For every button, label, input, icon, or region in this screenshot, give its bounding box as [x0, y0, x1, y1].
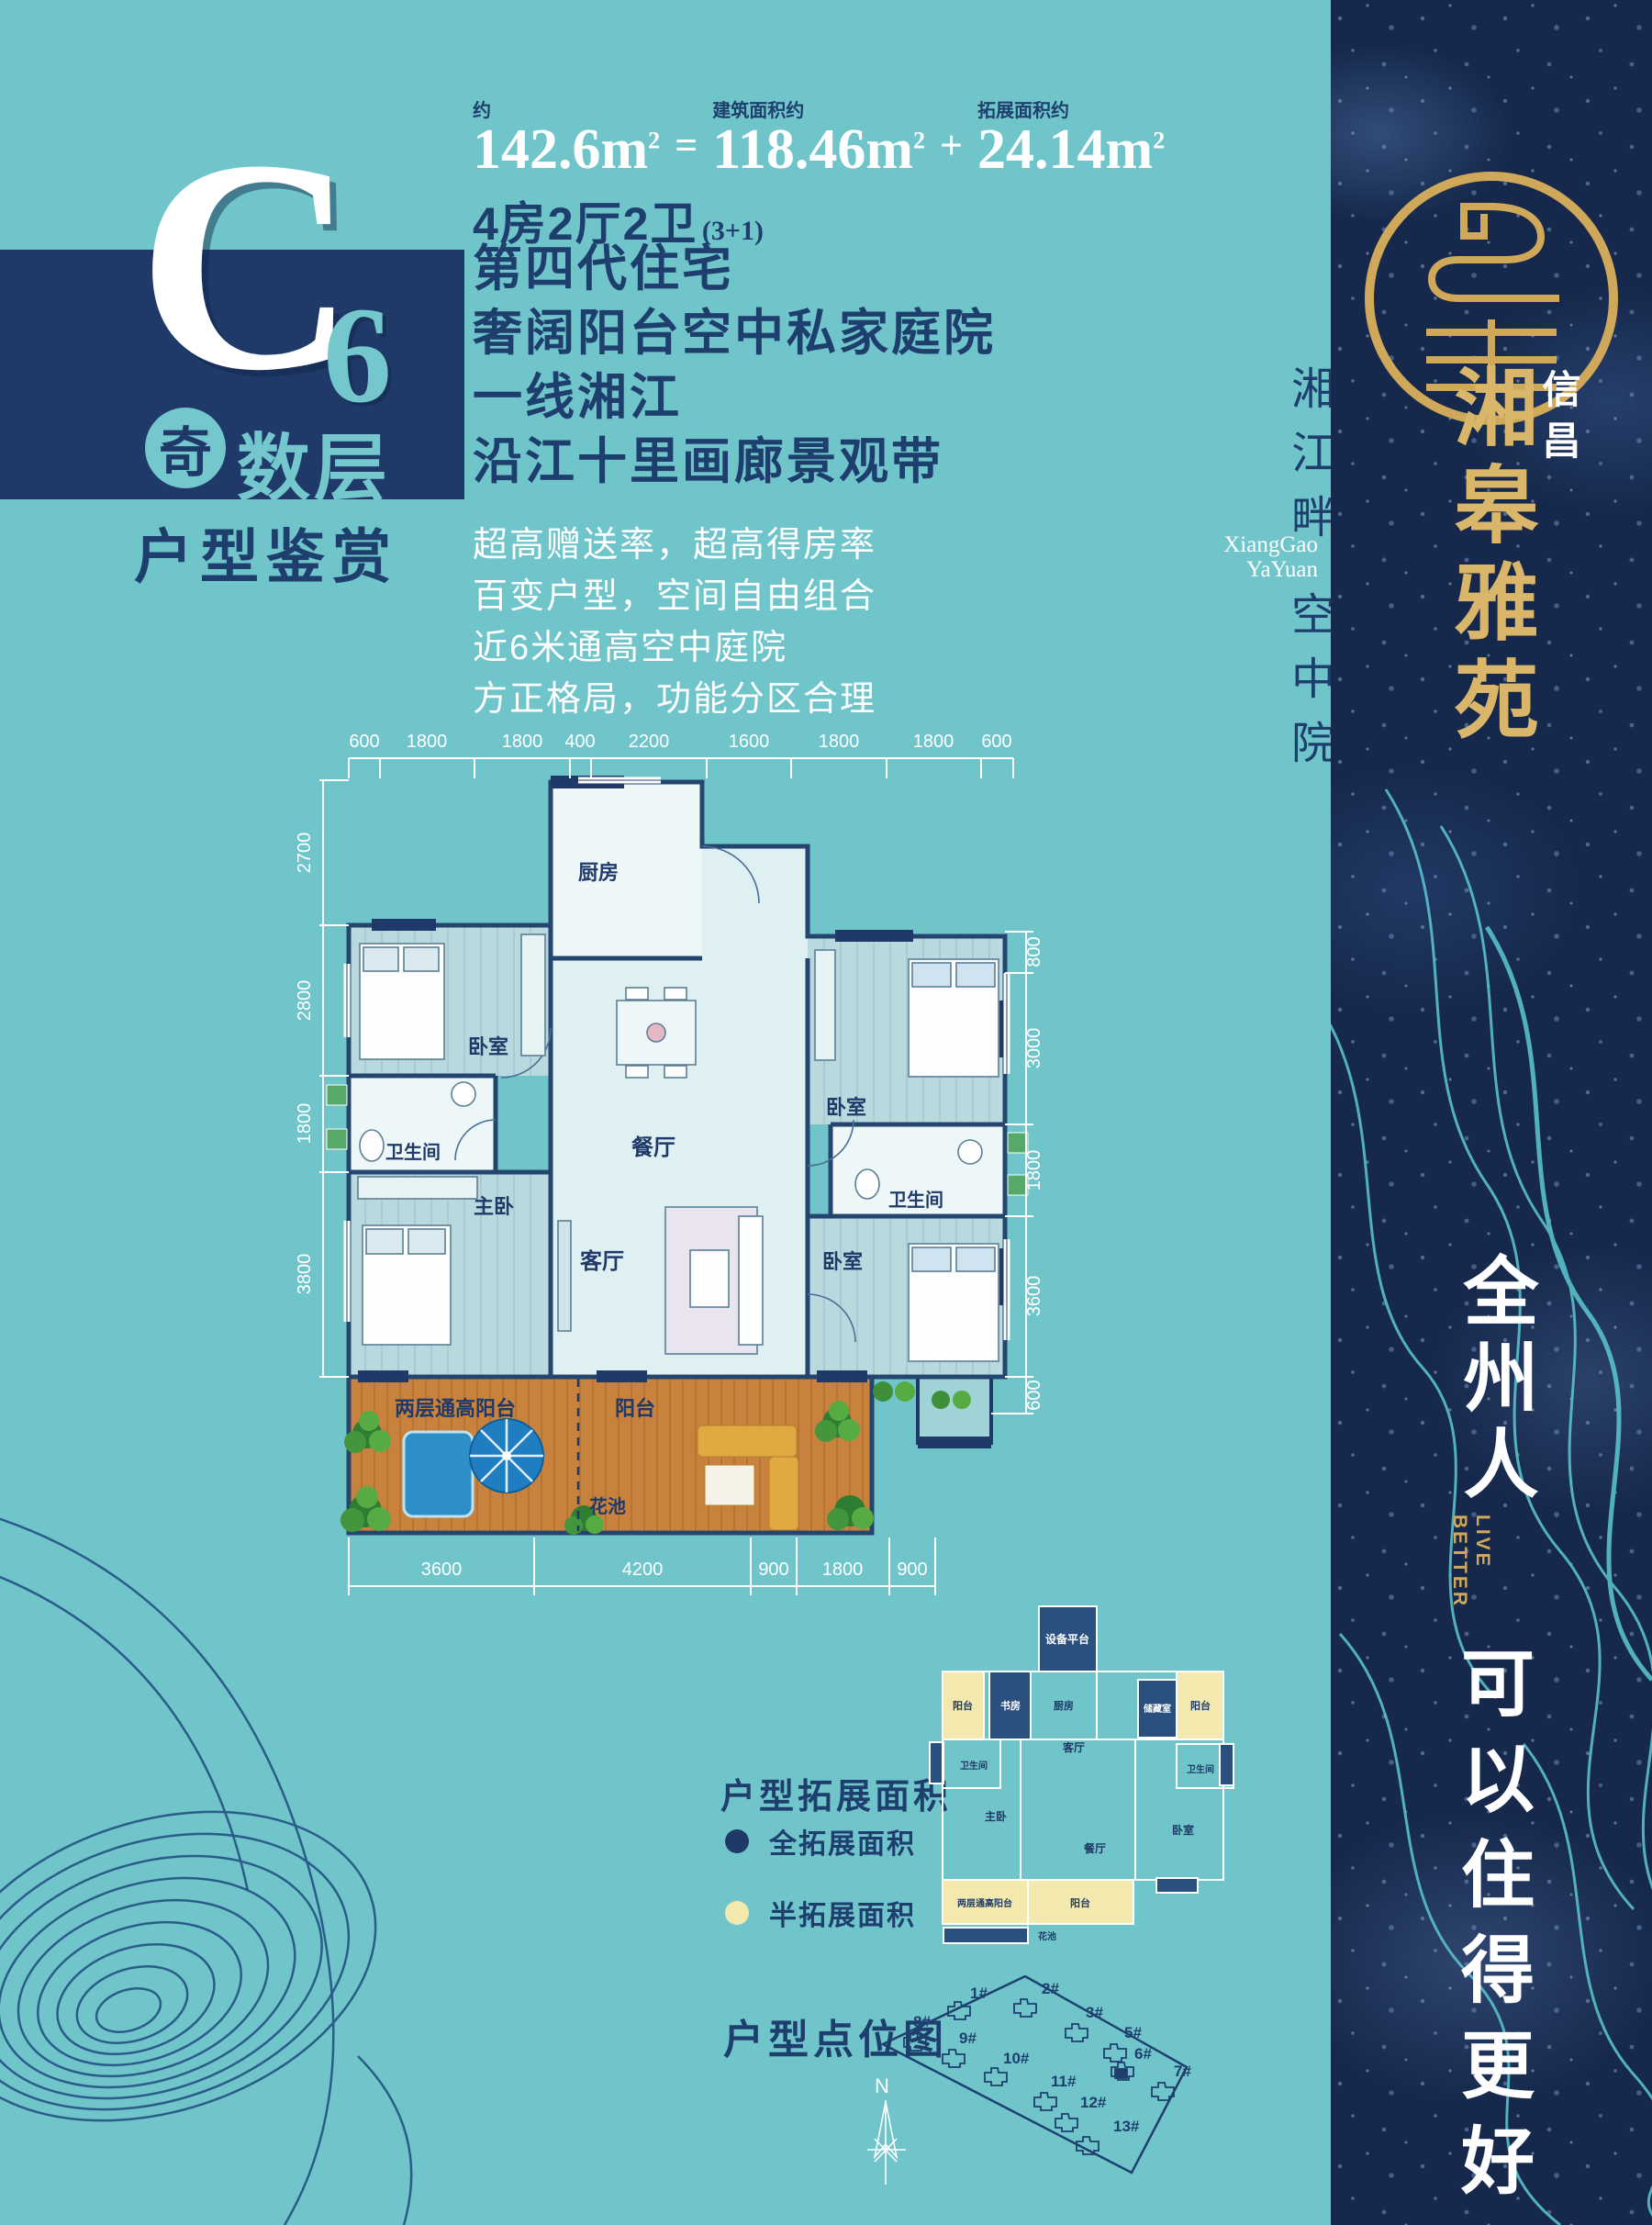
svg-text:1800: 1800	[407, 732, 448, 752]
room-label-master: 主卧	[474, 1195, 514, 1218]
compass-icon: N	[867, 2074, 906, 2185]
page-title: 户型鉴赏	[134, 510, 398, 595]
slogan-en-live: LIVE	[1471, 1515, 1494, 1643]
full-extension-label: 全拓展面积	[769, 1821, 916, 1862]
svg-text:10#: 10#	[1003, 2050, 1030, 2067]
feature: 百变户型，空间自由组合	[473, 571, 876, 622]
room-label-balcony: 阳台	[615, 1397, 655, 1420]
svg-text:4200: 4200	[622, 1560, 664, 1580]
svg-text:3600: 3600	[1024, 1276, 1044, 1317]
svg-text:600: 600	[1024, 1380, 1044, 1410]
svg-text:1800: 1800	[502, 732, 543, 752]
svg-text:1800: 1800	[822, 1560, 864, 1580]
headline: 第四代住宅	[473, 237, 996, 301]
svg-text:600: 600	[981, 732, 1011, 752]
built-area-value: 118.46m2	[712, 124, 925, 176]
svg-text:8#: 8#	[913, 2013, 931, 2030]
svg-text:9#: 9#	[959, 2029, 977, 2047]
pinyin-line2: YaYuan	[1195, 557, 1318, 582]
svg-text:6#: 6#	[1134, 2045, 1152, 2063]
room-label-kitchen: 厨房	[578, 861, 619, 884]
slogan-cn-top: 全州人	[1439, 1252, 1548, 1527]
slogan-en-better: BETTER	[1448, 1515, 1471, 1643]
mini-label-kitchen: 厨房	[1054, 1699, 1074, 1712]
svg-text:7#: 7#	[1174, 2063, 1191, 2080]
svg-text:5#: 5#	[1124, 2024, 1142, 2041]
room-label-bath-left: 卫生间	[385, 1142, 441, 1163]
svg-text:11#: 11#	[1051, 2073, 1077, 2090]
total-area-value: 142.6m2	[473, 124, 660, 176]
svg-text:3#: 3#	[1086, 2004, 1103, 2021]
floorplan-poster: C 6 奇 数层 户型鉴赏 约 142.6m2 = 建筑面积约 118.46m2…	[0, 0, 1652, 2225]
area-equation: 约 142.6m2 = 建筑面积约 118.46m2 + 拓展面积约 24.14…	[473, 95, 1165, 176]
svg-text:2700: 2700	[295, 833, 315, 874]
mini-label-balcony-tall: 两层通高阳台	[957, 1897, 1012, 1909]
mini-label-equipment: 设备平台	[1045, 1632, 1089, 1646]
mini-label-balcony-tl: 阳台	[953, 1699, 973, 1712]
legend-title: 户型拓展面积	[720, 1768, 952, 1818]
room-label-balcony-tall: 两层通高阳台	[395, 1397, 516, 1420]
strip-text-pinyin: XiangGao YaYuan	[1195, 532, 1318, 582]
room-label-bedroom-left: 卧室	[468, 1035, 508, 1058]
highlighted-unit-marker	[1115, 2069, 1127, 2078]
built-area-group: 建筑面积约 118.46m2	[712, 95, 925, 176]
feature-list: 超高赠送率，超高得房率 百变户型，空间自由组合 近6米通高空中庭院 方正格局，功…	[473, 520, 876, 725]
svg-text:1800: 1800	[819, 732, 860, 752]
svg-text:900: 900	[758, 1560, 788, 1580]
floor-plan: 厨房 餐厅 客厅 卧室 卫生间 主卧 卧室 卫生间 卧室 两层通高阳台 阳台 花…	[275, 725, 1046, 1616]
svg-text:400: 400	[564, 732, 595, 752]
odd-floor-label: 数层	[237, 409, 391, 516]
headline: 一线湘江	[473, 365, 996, 430]
odd-floor-badge: 奇	[145, 408, 226, 488]
half-extension-label: 半拓展面积	[769, 1893, 916, 1933]
legend-item-half: 半拓展面积	[725, 1893, 916, 1933]
extension-area-group: 拓展面积约 24.14m2	[977, 95, 1165, 176]
mini-label-bath-left: 卫生间	[960, 1760, 988, 1772]
extension-area-value: 24.14m2	[977, 124, 1165, 176]
svg-text:2#: 2#	[1042, 1980, 1059, 1997]
svg-text:1600: 1600	[729, 732, 770, 752]
extension-mini-plan: 设备平台 阳台 书房 厨房 储藏室 阳台 卫生间 客厅 卫生间 主卧 餐厅 卧室…	[922, 1586, 1289, 1985]
mini-label-dining: 餐厅	[1084, 1841, 1106, 1855]
pinyin-line1: XiangGao	[1195, 532, 1318, 557]
mini-label-bedroom: 卧室	[1172, 1823, 1194, 1837]
small-balcony	[918, 1377, 991, 1443]
svg-text:2800: 2800	[295, 980, 315, 1022]
mini-label-flower: 花池	[1038, 1930, 1056, 1942]
headline: 沿江十里画廊景观带	[473, 430, 996, 494]
room-label-bath-right: 卫生间	[888, 1190, 943, 1211]
svg-text:800: 800	[1024, 936, 1044, 967]
mini-label-master: 主卧	[985, 1809, 1007, 1823]
svg-text:1800: 1800	[295, 1103, 315, 1145]
svg-text:13#: 13#	[1113, 2118, 1140, 2135]
svg-text:1800: 1800	[913, 732, 954, 752]
unit-number: 6	[323, 296, 392, 415]
mini-label-balcony-tr: 阳台	[1190, 1699, 1211, 1712]
room-label-living: 客厅	[580, 1248, 624, 1274]
svg-text:N: N	[875, 2074, 889, 2097]
svg-text:600: 600	[349, 732, 379, 752]
full-extension-dot	[725, 1829, 749, 1853]
svg-text:1#: 1#	[970, 1985, 988, 2002]
svg-text:1800: 1800	[1024, 1150, 1044, 1191]
headline-list: 第四代住宅 奢阔阳台空中私家庭院 一线湘江 沿江十里画廊景观带	[473, 237, 996, 494]
room-label-bedroom-right-top: 卧室	[826, 1096, 866, 1119]
svg-text:3000: 3000	[1024, 1028, 1044, 1069]
room-label-dining: 餐厅	[631, 1135, 675, 1160]
svg-text:12#: 12#	[1080, 2094, 1107, 2111]
site-map: 1# 2# 3# 5# 6# 7# 8# 9# 10# 11# 12# 13# …	[867, 1973, 1363, 2225]
brand-sidebar: 湘皋雅苑 信昌 全州人 LIVE BETTER 可以住得更好	[1331, 0, 1652, 2225]
half-extension-dot	[725, 1901, 749, 1925]
svg-text:2200: 2200	[629, 732, 670, 752]
slogan-en: LIVE BETTER	[1448, 1515, 1494, 1643]
brand-developer: 信昌	[1531, 369, 1587, 516]
feature: 方正格局，功能分区合理	[473, 674, 876, 725]
room-label-bedroom-right-bottom: 卧室	[822, 1250, 863, 1273]
mini-label-bath-right: 卫生间	[1187, 1763, 1214, 1775]
headline: 奢阔阳台空中私家庭院	[473, 301, 996, 365]
total-area-group: 约 142.6m2	[473, 95, 660, 176]
svg-text:900: 900	[897, 1560, 927, 1580]
svg-text:3800: 3800	[295, 1254, 315, 1295]
mini-label-living: 客厅	[1062, 1740, 1085, 1754]
svg-text:3600: 3600	[421, 1560, 463, 1580]
mini-label-balcony-b: 阳台	[1070, 1896, 1090, 1909]
slogan-cn-bottom: 可以住得更好	[1437, 1645, 1544, 2225]
equals-sign: =	[675, 122, 698, 176]
feature: 近6米通高空中庭院	[473, 622, 876, 674]
feature: 超高赠送率，超高得房率	[473, 520, 876, 571]
room-label-flower-bed: 花池	[589, 1496, 626, 1517]
mini-label-study: 书房	[1000, 1699, 1021, 1712]
legend-item-full: 全拓展面积	[725, 1821, 916, 1862]
plus-sign: +	[940, 122, 963, 176]
mini-label-storage: 储藏室	[1143, 1703, 1171, 1715]
